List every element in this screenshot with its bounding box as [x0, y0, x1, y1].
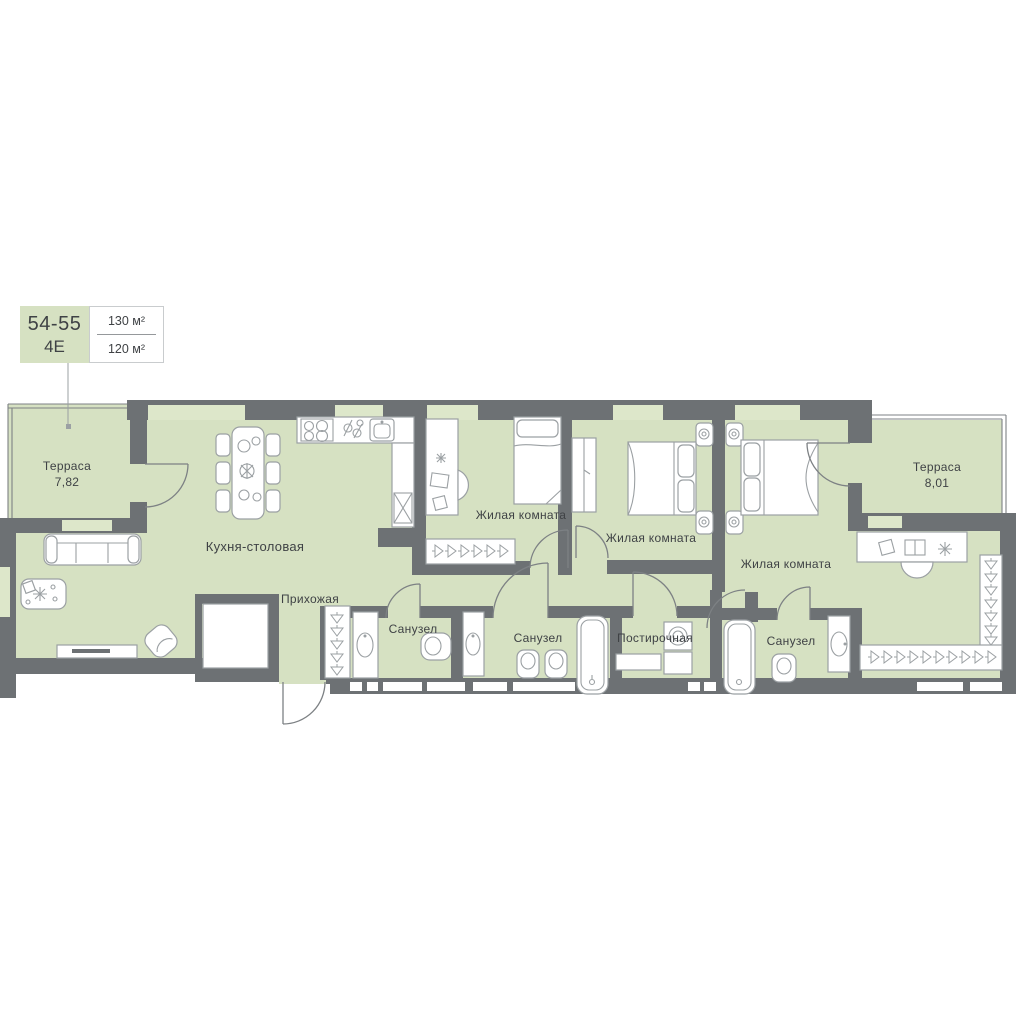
wall-segment	[451, 606, 463, 694]
wall-segment	[848, 400, 872, 443]
window-opening	[688, 682, 700, 691]
window-opening	[383, 682, 422, 691]
wall-segment	[420, 606, 451, 618]
wall-segment	[195, 604, 202, 668]
sink-icon	[828, 616, 850, 672]
kitchen-sink-icon	[370, 419, 394, 441]
window-opening	[613, 405, 663, 420]
coat-closet-icon	[325, 606, 350, 678]
dining-table-icon	[216, 427, 280, 519]
nightstand-icon	[696, 511, 713, 534]
window-opening	[0, 567, 10, 617]
window-opening	[917, 682, 963, 691]
window-opening	[427, 405, 478, 420]
wall-segment	[378, 528, 412, 547]
sofa-icon	[44, 534, 141, 565]
wall-segment	[710, 590, 722, 694]
unit-area-living: 120 м²	[97, 335, 156, 362]
unit-number: 54-55	[28, 313, 82, 336]
floorplan-drawing: Терраса 7,82 Кухня-столовая Прихожая Жил…	[0, 0, 1024, 1024]
wall-segment	[130, 420, 147, 464]
window-opening	[473, 682, 507, 691]
room-area-terrace-right: 8,01	[925, 476, 950, 490]
unit-type: 4Е	[44, 337, 65, 357]
wardrobe-icon	[860, 645, 1002, 670]
room-label-terrace-right: Терраса	[913, 460, 961, 474]
wall-segment	[677, 606, 710, 618]
room-label-laundry: Постирочная	[617, 631, 693, 645]
wardrobe-icon	[426, 539, 515, 564]
hall-storage-icon	[203, 604, 268, 668]
window-opening	[62, 520, 112, 531]
kitchen-counter-icon	[297, 417, 414, 443]
unit-number-block: 54-55 4Е	[20, 306, 89, 363]
wall-segment	[622, 606, 633, 618]
nightstand-icon	[696, 423, 713, 446]
window-opening	[427, 682, 465, 691]
room-label-living3: Жилая комната	[741, 557, 832, 571]
toilet-icon	[772, 654, 796, 682]
room-label-living1: Жилая комната	[476, 508, 567, 522]
room-label-hallway: Прихожая	[281, 592, 339, 606]
toilet-icon	[421, 633, 451, 660]
wall-segment	[195, 668, 279, 682]
wall-segment	[712, 420, 725, 592]
room-label-living2: Жилая комната	[606, 531, 697, 545]
wall-segment	[195, 594, 279, 604]
door-entrance	[283, 682, 325, 724]
room-label-kitchen: Кухня-столовая	[206, 539, 305, 554]
kitchen-column-icon	[392, 443, 414, 527]
double-bed-icon	[628, 442, 696, 515]
sliding-wardrobe-icon	[572, 438, 596, 512]
window-opening	[868, 516, 902, 528]
coffee-table-icon	[21, 579, 66, 609]
window-opening	[735, 405, 800, 420]
wall-segment	[0, 658, 203, 674]
room-label-bathroom3: Санузел	[767, 634, 816, 648]
tv-stand-icon	[57, 645, 137, 658]
window-opening	[350, 682, 362, 691]
sink-icon	[463, 612, 484, 676]
wall-segment	[722, 608, 777, 620]
sink-icon	[353, 612, 378, 678]
unit-area-total: 130 м²	[97, 307, 156, 335]
wall-segment	[607, 560, 712, 574]
room-area-terrace-left: 7,82	[55, 475, 80, 489]
window-opening	[970, 682, 1002, 691]
bathtub-icon	[724, 620, 755, 694]
floorplan-page: Терраса 7,82 Кухня-столовая Прихожая Жил…	[0, 0, 1024, 1024]
window-opening	[367, 682, 378, 691]
unit-areas-block: 130 м² 120 м²	[89, 306, 164, 363]
laundry-shelf-icon	[616, 654, 661, 670]
bathtub-icon	[577, 616, 608, 694]
wall-segment	[848, 483, 862, 513]
toilet-icon	[517, 650, 539, 678]
bidet-icon	[545, 650, 567, 678]
room-label-terrace-left: Терраса	[43, 459, 91, 473]
room-label-bathroom1: Санузел	[389, 622, 438, 636]
double-bed-icon	[741, 440, 818, 515]
window-opening	[148, 405, 245, 420]
window-opening	[513, 682, 575, 691]
room-label-bathroom2: Санузел	[514, 631, 563, 645]
wall-segment	[610, 606, 622, 694]
single-bed-icon	[514, 417, 561, 504]
unit-card: 54-55 4Е 130 м² 120 м²	[20, 306, 164, 363]
floor-entrance	[279, 658, 326, 684]
window-opening	[704, 682, 716, 691]
wardrobe-icon	[980, 555, 1002, 647]
